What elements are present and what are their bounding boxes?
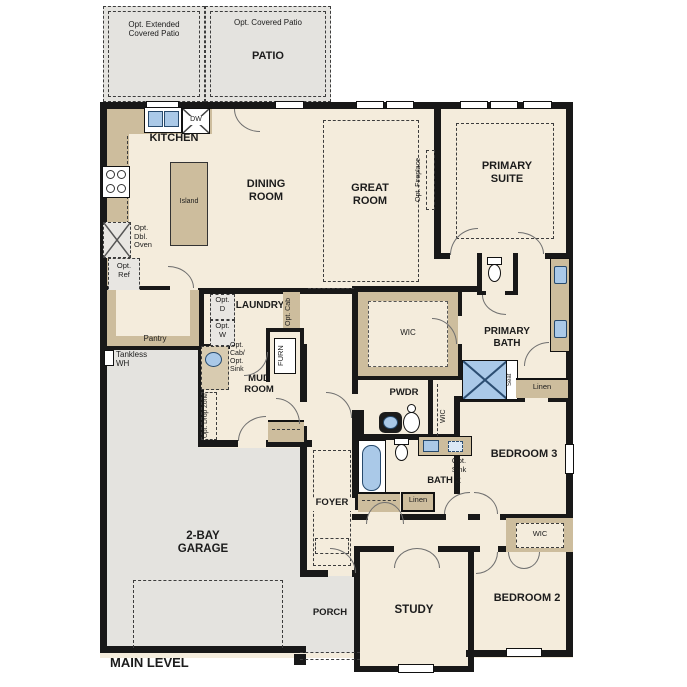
porch-label: PORCH (308, 608, 352, 620)
opt-fireplace-box (426, 150, 435, 210)
opt-double-oven-label: Opt. Dbl. Oven (134, 224, 168, 258)
bath2-label: BATH 2 (420, 476, 468, 488)
wall (198, 440, 238, 447)
window (386, 101, 414, 109)
floor-plan: Opt. Extended Covered Patio Opt. Covered… (0, 0, 687, 687)
sink-icon (554, 320, 567, 338)
porch-edge-dash (300, 652, 360, 660)
closet-rod-dash (272, 429, 300, 431)
bedroom2-wic-label: WIC (516, 530, 564, 540)
primary-linen-label: Linen (516, 383, 568, 393)
dining-room-label: DINING ROOM (228, 178, 304, 206)
bedroom2-label: BEDROOM 2 (482, 592, 572, 605)
hall-wic-label: WIC (440, 398, 454, 434)
sink-basin-icon (148, 111, 163, 127)
tankless-wh-label: Tankless WH (116, 350, 164, 372)
toilet-icon (395, 444, 408, 461)
window (490, 101, 518, 109)
wall (513, 253, 518, 295)
kitchen-label: KITCHEN (140, 132, 208, 146)
garage-door-dash (133, 580, 283, 648)
furnace-label: FURN (277, 341, 293, 371)
burner-icon (106, 170, 115, 179)
primary-suite-label: PRIMARY SUITE (462, 160, 552, 188)
burner-icon (117, 184, 126, 193)
window (460, 101, 488, 109)
shower-icon (462, 360, 508, 400)
powder-label: PWDR (383, 388, 425, 400)
opt-drop-zone-label: Opt. Drop Zone (202, 393, 216, 439)
wall (300, 426, 307, 572)
wall (434, 107, 441, 255)
bathtub-basin-icon (362, 445, 381, 491)
pantry-label: Pantry (130, 334, 180, 345)
wall (434, 253, 450, 259)
sink-basin-icon (164, 111, 179, 127)
toilet-icon (488, 264, 501, 282)
wall (468, 546, 474, 672)
wall (300, 570, 328, 577)
burner-icon (106, 184, 115, 193)
bedroom3-label: BEDROOM 3 (478, 448, 570, 461)
bath2-linen-label: Linen (401, 496, 435, 506)
window (398, 664, 434, 673)
plan-title: MAIN LEVEL (110, 656, 225, 672)
opt-sink-icon (448, 441, 463, 452)
hall-wic-rod-dash (437, 384, 439, 436)
opt-fireplace-label: Opt. Fireplace (415, 148, 426, 212)
mud-room-label: MUD ROOM (228, 374, 290, 400)
laundry-label: LAUNDRY (234, 300, 286, 312)
wall (352, 380, 358, 394)
wall (434, 666, 474, 672)
window (506, 648, 542, 657)
dishwasher-label: DW (184, 116, 208, 125)
sink-icon (554, 266, 567, 284)
opt-double-oven-icon (103, 222, 131, 258)
study-label: STUDY (384, 604, 444, 619)
wall (505, 291, 518, 295)
foyer-label: FOYER (309, 498, 355, 511)
sink-icon (423, 440, 439, 452)
primary-wic-label: WIC (393, 328, 423, 339)
opt-refrigerator-label: Opt. Ref (108, 262, 140, 288)
garage-label: 2-BAY GARAGE (163, 530, 243, 558)
window (523, 101, 552, 109)
primary-bath-label: PRIMARY BATH (478, 326, 536, 352)
bath2-opt-sink-label: Opt. Sink (446, 457, 472, 477)
island-label: Island (170, 198, 208, 208)
patio-label: PATIO (238, 50, 298, 64)
wall (428, 380, 433, 438)
burner-icon (117, 170, 126, 179)
window (275, 101, 304, 109)
sink-icon (383, 416, 398, 429)
opt-extended-patio-label: Opt. Extended Covered Patio (112, 20, 196, 42)
wall (468, 514, 480, 520)
window (356, 101, 384, 109)
opt-dryer-label: Opt. D (210, 296, 235, 318)
wall (354, 546, 394, 552)
tankless-water-heater-icon (104, 350, 114, 366)
sink-icon (205, 352, 222, 367)
great-room-label: GREAT ROOM (330, 182, 410, 210)
opt-cab-label: Opt. Cab (285, 294, 298, 330)
hall-opening-dash (308, 288, 354, 290)
opt-washer-label: Opt. W (210, 322, 235, 344)
opt-covered-patio-label: Opt. Covered Patio (222, 18, 314, 28)
closet-rod-dash (362, 500, 396, 502)
wall (400, 514, 446, 520)
wall (354, 666, 398, 672)
toilet-icon (403, 412, 420, 433)
